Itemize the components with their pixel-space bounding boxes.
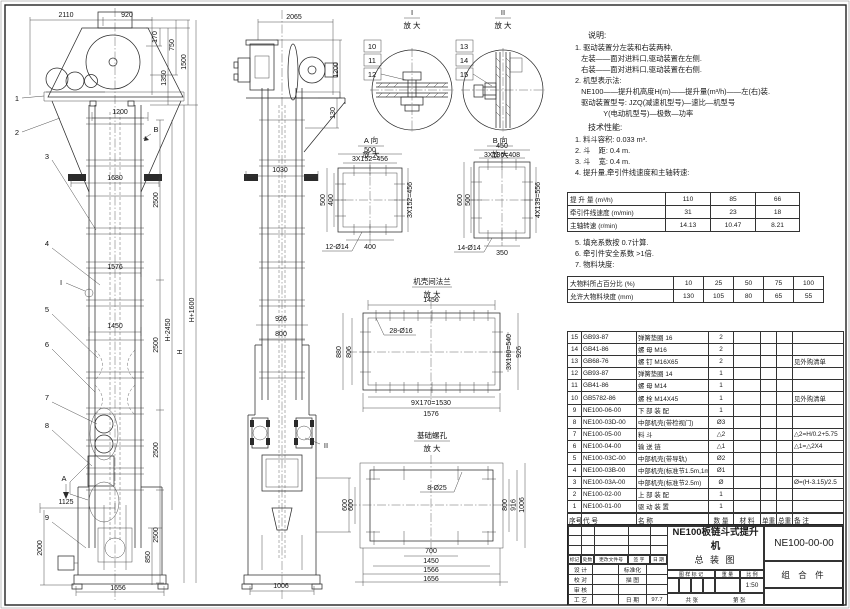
table-cell: 80	[734, 290, 764, 303]
table-cell: 2	[709, 332, 734, 344]
table-cell	[569, 526, 582, 536]
table-cell: NE100-03D-00	[582, 416, 637, 428]
table-cell: 23	[711, 206, 756, 219]
bom-table: 15GB93-87弹簧垫圈 16214GB41-86螺 母 M16213GB68…	[567, 331, 844, 513]
rev-col-label: 处数	[581, 554, 594, 564]
note-line: 右装——面对进料口,驱动装置在右侧.	[575, 64, 837, 75]
tech-title: 技术性能:	[588, 122, 837, 134]
table-cell: 9	[568, 404, 582, 416]
table-cell	[793, 332, 844, 344]
table-cell: 14	[568, 344, 582, 356]
table-cell	[761, 392, 777, 404]
table-cell: 螺 母 M14	[637, 380, 709, 392]
table-cell: 见外购清单	[793, 356, 844, 368]
table-cell	[777, 344, 793, 356]
table-cell	[569, 536, 582, 546]
table-cell	[651, 526, 668, 536]
table-cell: 1	[709, 489, 734, 501]
table-cell	[793, 452, 844, 464]
rev-col-label: 日 期	[650, 554, 667, 564]
note-line: 1. 料斗容积: 0.033 m³.	[575, 134, 837, 145]
notes-title: 说明:	[588, 30, 837, 42]
table-cell: △1=△2X4	[793, 440, 844, 452]
table-cell	[734, 501, 761, 513]
table-cell: 螺 母 M16	[637, 344, 709, 356]
table-cell	[777, 465, 793, 477]
table-cell	[734, 404, 761, 416]
title-block: 标记 处数 更改文件号 签 字 日 期 设 计标准化校 对描 图审 核工 艺日 …	[567, 524, 843, 605]
mark-box	[667, 578, 679, 593]
table-cell: GB68-76	[582, 356, 637, 368]
scale-label: 比 例	[740, 570, 764, 578]
table-cell: NE100-01-00	[582, 501, 637, 513]
sheets-label: 共 张	[685, 596, 698, 604]
note-line: 1. 驱动装置分左装和右装两种,	[575, 42, 837, 53]
table-cell	[734, 477, 761, 489]
table-cell	[761, 477, 777, 489]
table-cell: NE100-02-00	[582, 489, 637, 501]
sheet-name: 总 装 图	[668, 550, 763, 568]
table-cell	[793, 501, 844, 513]
performance-table: 提 升 量 (m³/h)1108566牵引件线速度 (m/min)312318主…	[567, 192, 800, 232]
table-cell	[734, 332, 761, 344]
table-cell	[595, 526, 629, 536]
table-cell	[777, 501, 793, 513]
table-cell: 料 斗	[637, 428, 709, 440]
table-cell: 130	[674, 290, 704, 303]
table-cell: 75	[764, 277, 794, 290]
table-cell	[734, 416, 761, 428]
table-cell: 18	[756, 206, 800, 219]
table-cell: 100	[794, 277, 824, 290]
drawing-sheet: 2110 920 170 1350 750 1500 1200 1680 157…	[0, 0, 850, 609]
note-line: 3. 斗 宽: 0.4 m.	[575, 156, 837, 167]
table-cell	[734, 380, 761, 392]
table-cell: 14.13	[666, 219, 711, 232]
table-cell: Ø2	[709, 452, 734, 464]
note-line: Y(电动机型号)—极数—功率	[575, 108, 837, 119]
table-cell: 工 艺	[569, 595, 593, 605]
table-cell: 3	[568, 477, 582, 489]
table-cell	[582, 536, 595, 546]
table-cell	[777, 380, 793, 392]
note-line: 2. 斗 距: 0.4 m.	[575, 145, 837, 156]
table-cell: 螺 栓 M14X45	[637, 392, 709, 404]
table-cell: 7	[568, 428, 582, 440]
table-cell: 见外购清单	[793, 392, 844, 404]
table-cell: 允许大物料块度 (mm)	[568, 290, 674, 303]
notes-block: 说明: 1. 驱动装置分左装和右装两种, 左装——面对进料口,驱动装置在左侧. …	[575, 30, 837, 178]
table-cell: Ø	[709, 477, 734, 489]
note-line: 驱动装置型号: JZQ(减速机型号)—速比—机型号	[575, 97, 837, 108]
table-cell: 2	[568, 489, 582, 501]
note-line: 7. 物料块度:	[575, 259, 825, 270]
table-cell	[777, 392, 793, 404]
note-line: 4. 提升量,牵引件线速度和主轴转速:	[575, 167, 837, 178]
bom-block: 15GB93-87弹簧垫圈 16214GB41-86螺 母 M16213GB68…	[567, 331, 843, 527]
table-cell	[777, 404, 793, 416]
table-cell: 主轴转速 (r/min)	[568, 219, 666, 232]
mark-box	[691, 578, 703, 593]
table-cell: 弹簧垫圈 14	[637, 368, 709, 380]
table-cell	[793, 368, 844, 380]
table-cell: 下 部 装 配	[637, 404, 709, 416]
table-cell: 中部机壳(标准节2.5m)	[637, 477, 709, 489]
table-cell	[793, 404, 844, 416]
part-type: 组 合 件	[764, 561, 844, 588]
mark-box	[679, 578, 691, 593]
table-cell: 10	[674, 277, 704, 290]
table-cell	[647, 575, 668, 585]
table-cell	[651, 536, 668, 546]
table-cell: 中部机壳(带检视门)	[637, 416, 709, 428]
table-cell: 审 核	[569, 585, 593, 595]
table-cell	[734, 368, 761, 380]
drawing-number: NE100-00-00	[764, 525, 844, 561]
note-line: 左装——面对进料口,驱动装置在左侧.	[575, 53, 837, 64]
table-cell: NE100-03B-00	[582, 465, 637, 477]
table-cell: NE100-03C-00	[582, 452, 637, 464]
note-line: 6. 牵引件安全系数 >1倍.	[575, 248, 825, 259]
mark-box	[703, 578, 715, 593]
table-cell: 8	[568, 416, 582, 428]
product-name: NE100板链斗式提升机	[668, 526, 763, 550]
table-cell: 31	[666, 206, 711, 219]
table-cell: 105	[704, 290, 734, 303]
table-cell: 1	[709, 368, 734, 380]
table-cell: NE100-04-00	[582, 440, 637, 452]
table-cell: NE100-05-00	[582, 428, 637, 440]
table-cell: 2	[709, 344, 734, 356]
tech-lines-2: 5. 填充系数按 0.7计算.6. 牵引件安全系数 >1倍.7. 物料块度:	[575, 237, 825, 270]
rev-col-label: 签 字	[628, 554, 650, 564]
table-cell	[761, 489, 777, 501]
table-cell	[593, 585, 619, 595]
table-cell: 1	[709, 501, 734, 513]
page-label: 第 张	[733, 596, 746, 604]
table-cell	[647, 565, 668, 575]
table-cell	[777, 477, 793, 489]
table-cell: GB41-86	[582, 380, 637, 392]
mark-label: 图 样 标 记	[667, 570, 715, 578]
rev-col-label: 标记	[568, 554, 581, 564]
table-cell	[734, 344, 761, 356]
table-cell: 5	[568, 452, 582, 464]
table-cell	[777, 440, 793, 452]
table-cell: 描 图	[619, 575, 647, 585]
table-cell: 校 对	[569, 575, 593, 585]
table-cell	[734, 356, 761, 368]
table-cell: 中部机壳(标准节1.5m,1m)	[637, 465, 709, 477]
table-cell: △2	[709, 428, 734, 440]
table-cell	[793, 465, 844, 477]
table-cell	[761, 380, 777, 392]
table-cell: 中部机壳(带导轨)	[637, 452, 709, 464]
table-cell	[734, 452, 761, 464]
table-cell: 25	[704, 277, 734, 290]
table-cell	[734, 465, 761, 477]
table-cell: 55	[794, 290, 824, 303]
table-cell: 65	[764, 290, 794, 303]
table-cell: 4	[568, 465, 582, 477]
signature-grid: 设 计标准化校 对描 图审 核工 艺日 期97.7	[568, 564, 668, 605]
revision-grid	[568, 525, 668, 556]
lump-size-table: 大物料所占百分比 (%)10255075100允许大物料块度 (mm)13010…	[567, 276, 824, 303]
table-cell	[793, 489, 844, 501]
table-cell	[629, 526, 651, 536]
table-cell: 设 计	[569, 565, 593, 575]
note-line: 5. 填充系数按 0.7计算.	[575, 237, 825, 248]
mark-value-row: 1:50	[667, 578, 764, 593]
table-cell	[734, 489, 761, 501]
scale-value: 1:50	[740, 578, 764, 593]
table-cell: Ø1	[709, 465, 734, 477]
weight-label: 重 量	[715, 570, 740, 578]
table-cell	[761, 368, 777, 380]
mark-header-row: 图 样 标 记 重 量 比 例	[667, 570, 764, 578]
note-line: NE100——提升机高度H(m)——提升量(m³/h)——左(右)装.	[575, 86, 837, 97]
table-cell: 12	[568, 368, 582, 380]
table-cell	[793, 344, 844, 356]
table-cell: 驱 动 装 置	[637, 501, 709, 513]
table-cell	[777, 452, 793, 464]
table-cell	[619, 585, 647, 595]
table-cell	[761, 465, 777, 477]
right-panel: 说明: 1. 驱动装置分左装和右装两种, 左装——面对进料口,驱动装置在左侧. …	[0, 0, 850, 609]
table-cell: △2=H/0.2+5.75	[793, 428, 844, 440]
table-cell	[793, 380, 844, 392]
table-cell	[593, 595, 619, 605]
table-cell	[761, 344, 777, 356]
table-cell: 提 升 量 (m³/h)	[568, 193, 666, 206]
table-cell: GB5782-86	[582, 392, 637, 404]
table-cell: NE100-03A-00	[582, 477, 637, 489]
table-cell: 13	[568, 356, 582, 368]
table-cell: 标准化	[619, 565, 647, 575]
table-cell: 1	[709, 380, 734, 392]
revision-header-row: 标记 处数 更改文件号 签 字 日 期	[568, 554, 667, 564]
table-cell	[593, 575, 619, 585]
table-cell	[777, 428, 793, 440]
table-cell	[761, 356, 777, 368]
table-cell: 110	[666, 193, 711, 206]
table-cell	[734, 440, 761, 452]
table-cell: 66	[756, 193, 800, 206]
table-cell	[629, 536, 651, 546]
table-cell	[777, 489, 793, 501]
table-cell: 上 部 装 配	[637, 489, 709, 501]
table-cell: GB93-87	[582, 368, 637, 380]
table-cell	[777, 356, 793, 368]
table-cell: 1	[709, 404, 734, 416]
table-cell: 1	[568, 501, 582, 513]
rev-col-label: 更改文件号	[594, 554, 628, 564]
table-cell: Ø3	[709, 416, 734, 428]
table-cell: 1	[709, 392, 734, 404]
table-cell	[734, 428, 761, 440]
table-cell	[593, 565, 619, 575]
table-cell	[777, 332, 793, 344]
table-cell	[761, 440, 777, 452]
table-cell: NE100-06-00	[582, 404, 637, 416]
sheet-count-row: 共 张 第 张	[667, 593, 764, 606]
table-cell: 50	[734, 277, 764, 290]
table-cell	[761, 404, 777, 416]
blank-box	[764, 588, 844, 606]
table-cell: 97.7	[647, 595, 668, 605]
table-cell: 日 期	[619, 595, 647, 605]
table-cell: 10.47	[711, 219, 756, 232]
table-cell: 85	[711, 193, 756, 206]
table-cell: GB41-86	[582, 344, 637, 356]
table-cell	[761, 452, 777, 464]
table-cell: △1	[709, 440, 734, 452]
tech-lines: 1. 料斗容积: 0.033 m³.2. 斗 距: 0.4 m.3. 斗 宽: …	[575, 134, 837, 178]
notes-lines: 1. 驱动装置分左装和右装两种, 左装——面对进料口,驱动装置在左侧. 右装——…	[575, 42, 837, 119]
title-area: NE100板链斗式提升机 总 装 图	[667, 525, 764, 570]
table-cell	[582, 526, 595, 536]
table-cell	[793, 416, 844, 428]
table-cell: 螺 钉 M16X65	[637, 356, 709, 368]
table-cell	[761, 332, 777, 344]
table-cell: 6	[568, 440, 582, 452]
table-cell: 15	[568, 332, 582, 344]
table-cell	[647, 585, 668, 595]
table-cell	[761, 501, 777, 513]
table-cell	[734, 392, 761, 404]
table-cell: 2	[709, 356, 734, 368]
table-cell: 弹簧垫圈 16	[637, 332, 709, 344]
table-cell	[777, 368, 793, 380]
table-cell	[777, 416, 793, 428]
table-cell: 11	[568, 380, 582, 392]
weight-value	[715, 578, 740, 593]
table-cell	[761, 416, 777, 428]
table-cell	[595, 536, 629, 546]
table-cell: GB93-87	[582, 332, 637, 344]
table-cell: Ø=(H-3.15)/2.5	[793, 477, 844, 489]
table-cell: 8.21	[756, 219, 800, 232]
table-cell: 输 送 链	[637, 440, 709, 452]
table-cell	[761, 428, 777, 440]
note-line: 2. 机型表示法:	[575, 75, 837, 86]
table-cell: 大物料所占百分比 (%)	[568, 277, 674, 290]
table-cell: 10	[568, 392, 582, 404]
table-cell: 牵引件线速度 (m/min)	[568, 206, 666, 219]
